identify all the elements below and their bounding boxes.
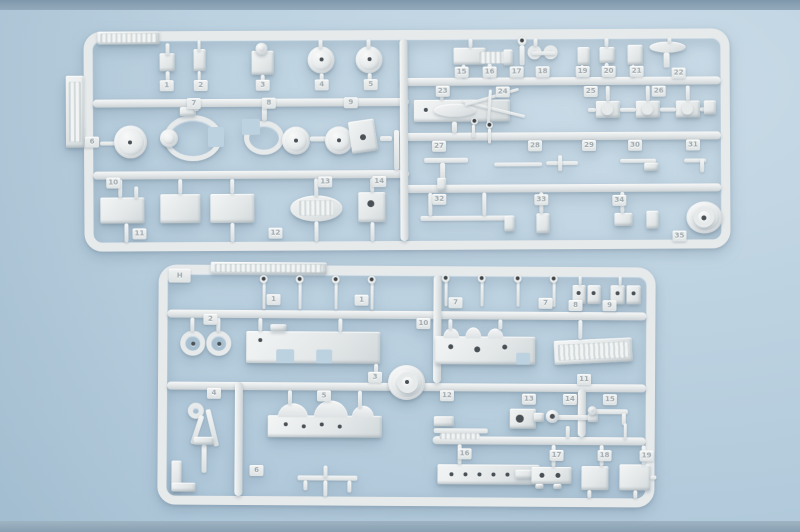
part-number-tab: 30 bbox=[628, 140, 642, 151]
part-number-tab: 21 bbox=[630, 66, 644, 77]
part-block bbox=[504, 49, 513, 65]
part-rod bbox=[262, 107, 267, 121]
part-rod bbox=[358, 391, 362, 408]
part-block bbox=[160, 194, 200, 223]
part-number-tab: 15 bbox=[603, 394, 617, 405]
part-block bbox=[531, 467, 571, 484]
part-hole bbox=[338, 425, 342, 429]
part-rod bbox=[323, 465, 327, 477]
part-ball bbox=[514, 275, 522, 283]
part-hole bbox=[367, 200, 374, 207]
part-ring bbox=[682, 104, 693, 115]
part-rod bbox=[424, 158, 468, 163]
part-number-tab: 2 bbox=[194, 80, 208, 91]
part-rod bbox=[579, 276, 582, 285]
part-rod bbox=[480, 280, 483, 306]
part-hole bbox=[474, 346, 480, 352]
part-rod bbox=[532, 51, 556, 55]
part-number-tab: 2 bbox=[203, 314, 217, 325]
part-notch bbox=[516, 353, 530, 365]
part-block bbox=[171, 483, 195, 492]
part-ball bbox=[442, 274, 450, 282]
part-number-tab: 5 bbox=[317, 390, 331, 401]
part-number-tab: 5 bbox=[364, 79, 378, 90]
part-rod bbox=[633, 490, 637, 498]
part-rod bbox=[366, 39, 370, 48]
part-rod bbox=[134, 186, 138, 198]
part-rod bbox=[230, 179, 234, 194]
part-number-tab: 19 bbox=[576, 66, 590, 77]
part-rod bbox=[700, 158, 704, 172]
part-rod bbox=[347, 481, 351, 493]
part-hole bbox=[616, 291, 620, 295]
part-number-tab: 6 bbox=[249, 465, 263, 476]
part-rod bbox=[520, 45, 525, 65]
part-hole bbox=[217, 342, 221, 346]
part-block bbox=[646, 211, 658, 229]
part-block bbox=[614, 213, 632, 226]
part-number-tab: 31 bbox=[686, 139, 700, 150]
part-number-tab: H bbox=[169, 269, 191, 283]
part-notch bbox=[208, 127, 224, 147]
part-number-tab: 9 bbox=[602, 300, 616, 311]
part-ring bbox=[602, 104, 613, 115]
sprue-rail bbox=[399, 39, 408, 241]
part-number-tab: 16 bbox=[458, 448, 472, 459]
part-rod bbox=[338, 319, 342, 332]
part-number-tab: 8 bbox=[262, 98, 276, 109]
part-rod bbox=[258, 318, 262, 331]
part-slats bbox=[299, 200, 333, 215]
part-hole bbox=[424, 108, 428, 112]
part-block bbox=[553, 484, 561, 489]
part-number-tab: 7 bbox=[538, 298, 552, 309]
part-hole bbox=[577, 291, 581, 295]
part-number-tab: 23 bbox=[436, 86, 450, 97]
part-hole bbox=[360, 134, 366, 140]
part-block bbox=[628, 45, 643, 65]
part-block bbox=[194, 49, 206, 71]
part-hole bbox=[555, 473, 560, 478]
part-number-tab: 8 bbox=[568, 300, 582, 311]
part-ball bbox=[478, 274, 486, 282]
backdrop-strip-bottom bbox=[0, 521, 800, 532]
part-rod bbox=[482, 193, 486, 216]
part-number-tab: 10 bbox=[416, 318, 430, 329]
part-block bbox=[160, 53, 175, 71]
part-hole bbox=[463, 472, 467, 476]
part-notch bbox=[276, 349, 294, 363]
part-ball bbox=[517, 36, 526, 45]
part-hole bbox=[516, 415, 524, 423]
part-hole bbox=[284, 422, 288, 426]
part-hole bbox=[505, 473, 509, 477]
part-number-tab: 24 bbox=[496, 86, 510, 97]
sprue-rail bbox=[578, 389, 586, 437]
part-rod bbox=[552, 281, 555, 307]
part-rod bbox=[370, 222, 374, 241]
part-ball bbox=[332, 276, 340, 284]
part-notch bbox=[242, 119, 260, 135]
part-slats bbox=[69, 82, 81, 142]
part-number-tab: 29 bbox=[582, 140, 596, 151]
part-rod bbox=[667, 38, 671, 43]
part-number-tab: 9 bbox=[344, 97, 358, 108]
part-rod bbox=[533, 38, 537, 46]
part-number-tab: 1 bbox=[160, 80, 174, 91]
part-block bbox=[704, 100, 716, 114]
part-rod bbox=[314, 221, 318, 241]
part-rod bbox=[619, 276, 622, 285]
part-ball bbox=[471, 118, 478, 125]
part-rod bbox=[664, 53, 670, 68]
part-number-tab: 32 bbox=[432, 194, 446, 205]
part-number-tab: 27 bbox=[432, 141, 446, 152]
part-hole bbox=[368, 57, 372, 61]
part-number-tab: 1 bbox=[354, 295, 368, 306]
part-slats bbox=[480, 51, 506, 63]
part-ring bbox=[642, 104, 653, 115]
part-rod bbox=[370, 282, 373, 310]
part-number-tab: 4 bbox=[207, 388, 221, 399]
sprue-rail bbox=[433, 275, 442, 383]
part-rod bbox=[588, 108, 596, 112]
product-photo: 1234567891011121314151617181920212223242… bbox=[0, 0, 800, 532]
part-hole bbox=[191, 342, 195, 346]
part-hole bbox=[449, 472, 453, 476]
part-rod bbox=[303, 480, 307, 490]
part-number-tab: 18 bbox=[536, 66, 550, 77]
part-number-tab: 34 bbox=[612, 195, 626, 206]
part-notch bbox=[316, 349, 332, 363]
part-rod bbox=[178, 179, 182, 194]
part-hole bbox=[502, 345, 507, 350]
part-rod bbox=[606, 86, 610, 101]
part-disc bbox=[255, 43, 267, 55]
part-number-tab: 12 bbox=[440, 390, 454, 401]
part-block bbox=[535, 484, 543, 489]
part-block bbox=[358, 192, 385, 222]
part-hole bbox=[258, 338, 262, 342]
part-rod bbox=[380, 136, 392, 141]
part-number-tab: 10 bbox=[106, 178, 120, 189]
part-rod bbox=[587, 490, 591, 498]
part-number-tab: 17 bbox=[550, 450, 564, 461]
sprue-rail bbox=[93, 98, 409, 108]
part-block bbox=[246, 331, 380, 364]
part-block bbox=[270, 324, 286, 331]
part-rod bbox=[558, 155, 562, 171]
part-hole bbox=[701, 215, 706, 220]
part-number-tab: 11 bbox=[132, 228, 146, 239]
part-block bbox=[534, 413, 544, 422]
part-rod bbox=[660, 108, 676, 112]
part-slats bbox=[215, 264, 323, 273]
part-hole bbox=[632, 291, 636, 295]
part-number-tab: 25 bbox=[584, 86, 598, 97]
part-disc bbox=[588, 406, 597, 415]
part-block bbox=[578, 47, 590, 65]
part-hole bbox=[477, 472, 481, 476]
part-block bbox=[437, 178, 446, 191]
part-number-tab: 15 bbox=[455, 67, 469, 78]
part-rod bbox=[578, 320, 582, 339]
part-number-tab: 3 bbox=[368, 372, 382, 383]
part-hole bbox=[491, 473, 495, 477]
part-block bbox=[536, 213, 549, 233]
part-number-tab: 20 bbox=[602, 66, 616, 77]
part-rod bbox=[472, 125, 475, 138]
part-number-tab: 17 bbox=[510, 66, 524, 77]
part-rod bbox=[516, 281, 519, 307]
part-rod bbox=[318, 39, 322, 48]
part-number-tab: 13 bbox=[318, 176, 332, 187]
part-hole bbox=[592, 291, 596, 295]
part-rod bbox=[288, 390, 292, 404]
part-rod bbox=[686, 86, 690, 101]
part-hole bbox=[320, 57, 324, 61]
part-hole bbox=[337, 138, 341, 142]
part-rod bbox=[646, 86, 650, 101]
part-number-tab: 26 bbox=[652, 86, 666, 97]
part-number-tab: 11 bbox=[577, 374, 591, 385]
part-rod bbox=[197, 40, 200, 51]
part-rod bbox=[604, 38, 608, 47]
sprue-rail bbox=[400, 183, 721, 193]
part-rod bbox=[124, 223, 128, 242]
part-rod bbox=[494, 162, 542, 166]
part-rod bbox=[190, 318, 194, 332]
part-block bbox=[581, 466, 608, 490]
sprue-rail bbox=[400, 131, 721, 141]
part-ball bbox=[296, 275, 304, 283]
part-ball bbox=[550, 275, 558, 283]
part-number-tab: 7 bbox=[187, 98, 201, 109]
part-block bbox=[210, 194, 254, 223]
part-number-tab: 3 bbox=[256, 80, 270, 91]
part-rod bbox=[566, 426, 570, 438]
part-block bbox=[434, 416, 454, 426]
part-ball bbox=[486, 122, 493, 129]
part-number-tab: 14 bbox=[372, 176, 386, 187]
part-rod bbox=[420, 215, 510, 220]
part-number-tab: 16 bbox=[483, 67, 497, 78]
part-rod bbox=[620, 108, 636, 112]
part-rod bbox=[230, 223, 234, 242]
part-number-tab: 14 bbox=[563, 394, 577, 405]
part-hole bbox=[539, 473, 544, 478]
part-rod bbox=[165, 43, 169, 55]
part-rod bbox=[452, 122, 457, 133]
part-hole bbox=[448, 344, 453, 349]
part-rod bbox=[444, 280, 447, 306]
part-number-tab: 19 bbox=[640, 450, 654, 461]
part-rod bbox=[394, 130, 399, 170]
part-hole bbox=[320, 422, 324, 426]
part-number-tab: 28 bbox=[528, 140, 542, 151]
part-hole bbox=[128, 140, 132, 144]
part-rod bbox=[488, 129, 491, 144]
part-hole bbox=[405, 380, 409, 384]
part-ball bbox=[368, 276, 376, 284]
part-number-tab: 6 bbox=[85, 137, 99, 148]
part-number-tab: 33 bbox=[534, 194, 548, 205]
sprue-rail bbox=[93, 170, 409, 180]
part-hole bbox=[550, 414, 555, 419]
part-number-tab: 22 bbox=[672, 68, 686, 79]
part-rod bbox=[323, 480, 327, 496]
part-hole bbox=[302, 424, 306, 428]
part-rod bbox=[298, 281, 301, 309]
part-block bbox=[194, 437, 214, 445]
part-block bbox=[619, 464, 650, 490]
part-number-tab: 35 bbox=[672, 231, 686, 242]
part-rod bbox=[498, 320, 502, 330]
part-block bbox=[644, 163, 658, 171]
part-hole bbox=[294, 139, 298, 143]
part-disc bbox=[160, 129, 178, 147]
backdrop-strip-top bbox=[0, 0, 800, 10]
part-rod bbox=[201, 445, 206, 473]
sprue-frame-bottom: 1177892310114561213141516171819H bbox=[157, 264, 655, 507]
part-block bbox=[504, 215, 514, 231]
sprue-rail bbox=[234, 382, 243, 496]
part-number-tab: 4 bbox=[315, 79, 329, 90]
part-slats bbox=[558, 342, 629, 361]
part-block bbox=[268, 415, 382, 438]
part-number-tab: 13 bbox=[522, 394, 536, 405]
part-slats bbox=[440, 433, 480, 439]
sprue-frame-top: 1234567891011121314151617181920212223242… bbox=[83, 28, 730, 251]
part-rod bbox=[650, 475, 656, 479]
part-rod bbox=[262, 281, 265, 309]
part-block bbox=[100, 197, 144, 223]
part-number-tab: 1 bbox=[266, 294, 280, 305]
part-rod bbox=[448, 319, 452, 329]
part-block bbox=[600, 47, 615, 63]
part-ball bbox=[260, 275, 268, 283]
part-slats bbox=[100, 33, 156, 42]
part-number-tab: 18 bbox=[598, 450, 612, 461]
part-rod bbox=[334, 282, 337, 310]
part-rod bbox=[624, 423, 627, 439]
part-rod bbox=[468, 39, 472, 48]
part-number-tab: 7 bbox=[448, 297, 462, 308]
part-number-tab: 12 bbox=[268, 228, 282, 239]
